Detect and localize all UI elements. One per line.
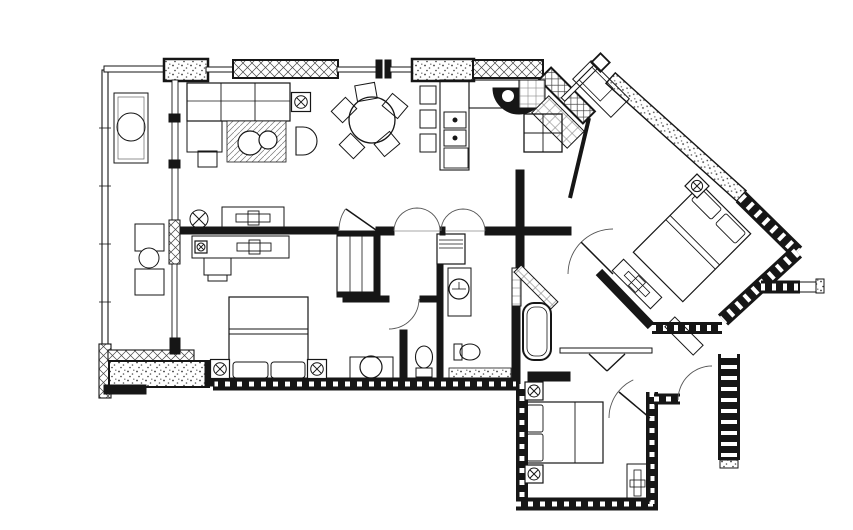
window-side-table bbox=[139, 248, 159, 268]
kitchen-pier bbox=[412, 59, 474, 81]
fireplace-hatch-horizontal bbox=[108, 350, 194, 361]
column-wall bbox=[172, 80, 178, 220]
wall-bedroom3-north bbox=[528, 372, 570, 381]
stub-tip-pier bbox=[816, 279, 824, 293]
mullion-a bbox=[376, 60, 382, 78]
bedroom2-west-wall bbox=[172, 264, 177, 340]
bedroom2-west-cap bbox=[170, 338, 180, 354]
closet-wall-top bbox=[337, 231, 375, 236]
bed3-nightstand-top bbox=[525, 382, 543, 400]
wall-dressing-south bbox=[560, 348, 652, 353]
fireplace-wall-left bbox=[104, 385, 146, 394]
bed3-nightstand-bottom bbox=[525, 465, 543, 483]
fireplace-hearth bbox=[109, 361, 209, 387]
window-band-north bbox=[233, 60, 338, 78]
top-wall-west bbox=[104, 66, 166, 72]
wall-tub-west bbox=[512, 306, 520, 384]
bed2-nightstand-left bbox=[211, 360, 230, 379]
wall-hall-top-left bbox=[376, 227, 394, 235]
wall-bathA-north-left bbox=[343, 296, 389, 302]
wall-hall-west bbox=[374, 236, 380, 296]
wall-hall-top-right bbox=[485, 227, 571, 235]
left-window-wall bbox=[102, 70, 108, 363]
bedroom2-west-window bbox=[169, 220, 180, 264]
wall-fridge-nook bbox=[516, 170, 524, 198]
wall-bathA-divider bbox=[400, 330, 407, 382]
floor-plan bbox=[0, 0, 853, 530]
wic-wall-tip-pier bbox=[720, 460, 738, 468]
sink-drain-2 bbox=[453, 136, 457, 140]
bed2-nightstand-right bbox=[308, 360, 327, 379]
floor-plan-page bbox=[0, 0, 853, 530]
window-band-kitchen bbox=[473, 60, 543, 78]
wall-bathA-north-right bbox=[420, 296, 437, 302]
coffee-table-large bbox=[238, 131, 262, 155]
coffee-table-small bbox=[259, 131, 277, 149]
sink-drain-1 bbox=[453, 118, 457, 122]
living-lamp-symbol bbox=[292, 93, 311, 112]
top-wall-a bbox=[206, 67, 234, 72]
wall-bathA-bathB bbox=[437, 264, 443, 382]
bedroom2-closet bbox=[337, 236, 375, 294]
column-mullion-2 bbox=[169, 160, 180, 168]
bathB-threshold-stipple bbox=[449, 368, 511, 379]
top-wall-c bbox=[390, 67, 413, 72]
entry-pier bbox=[164, 59, 208, 81]
column-mullion-1 bbox=[169, 114, 180, 122]
top-wall-b bbox=[337, 67, 377, 72]
burner-left bbox=[502, 90, 514, 102]
desk-lamp-symbol bbox=[195, 241, 207, 253]
